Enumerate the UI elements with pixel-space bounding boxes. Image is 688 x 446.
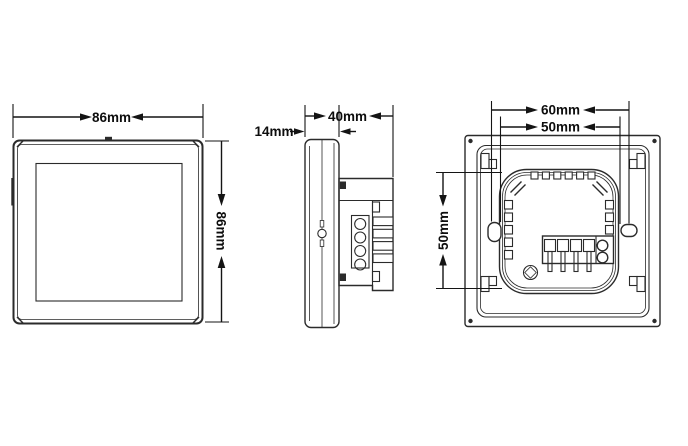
technical-drawing: 86mm 86mm (0, 0, 688, 446)
side-sensor-knob (318, 229, 326, 237)
back-screw-top-right (652, 139, 656, 143)
back-central-module (500, 170, 619, 294)
front-height-label: 86mm (214, 211, 229, 250)
front-view: 86mm 86mm (11, 104, 229, 324)
side-terminal-block (352, 216, 370, 271)
front-screen (36, 164, 182, 302)
module-right-teeth (606, 201, 614, 235)
back-screw-bottom-left (468, 319, 472, 323)
mounting-slot-left (488, 223, 501, 242)
front-top-notch (105, 137, 112, 141)
back-screw-bottom-right (652, 319, 656, 323)
front-side-button (11, 178, 14, 206)
mounting-slot-right (621, 225, 637, 237)
front-width-label: 86mm (92, 110, 131, 125)
side-view: 40mm 14mm (254, 105, 393, 328)
side-rear-fins (373, 217, 393, 263)
dimension-front-width: 86mm (13, 104, 203, 138)
thermostat-dimension-drawing: 86mm 86mm (0, 0, 688, 446)
front-outer-frame (14, 141, 203, 324)
front-bezel-line (18, 145, 199, 320)
module-left-teeth (505, 201, 513, 260)
back-view: 60mm 50mm 50mm (436, 101, 660, 327)
dimension-side-total-depth: 40mm (305, 105, 393, 177)
side-total-depth-label: 40mm (328, 109, 367, 124)
back-hole-spacing-label: 60mm (541, 102, 580, 117)
back-top-width-label: 50mm (541, 119, 580, 134)
side-clip-bottom (340, 274, 346, 282)
side-panel-depth-label: 14mm (254, 124, 293, 139)
back-left-height-label: 50mm (436, 211, 451, 250)
side-clip-top (340, 182, 346, 190)
dimension-front-height: 86mm (205, 141, 229, 322)
back-screw-top-left (468, 139, 472, 143)
